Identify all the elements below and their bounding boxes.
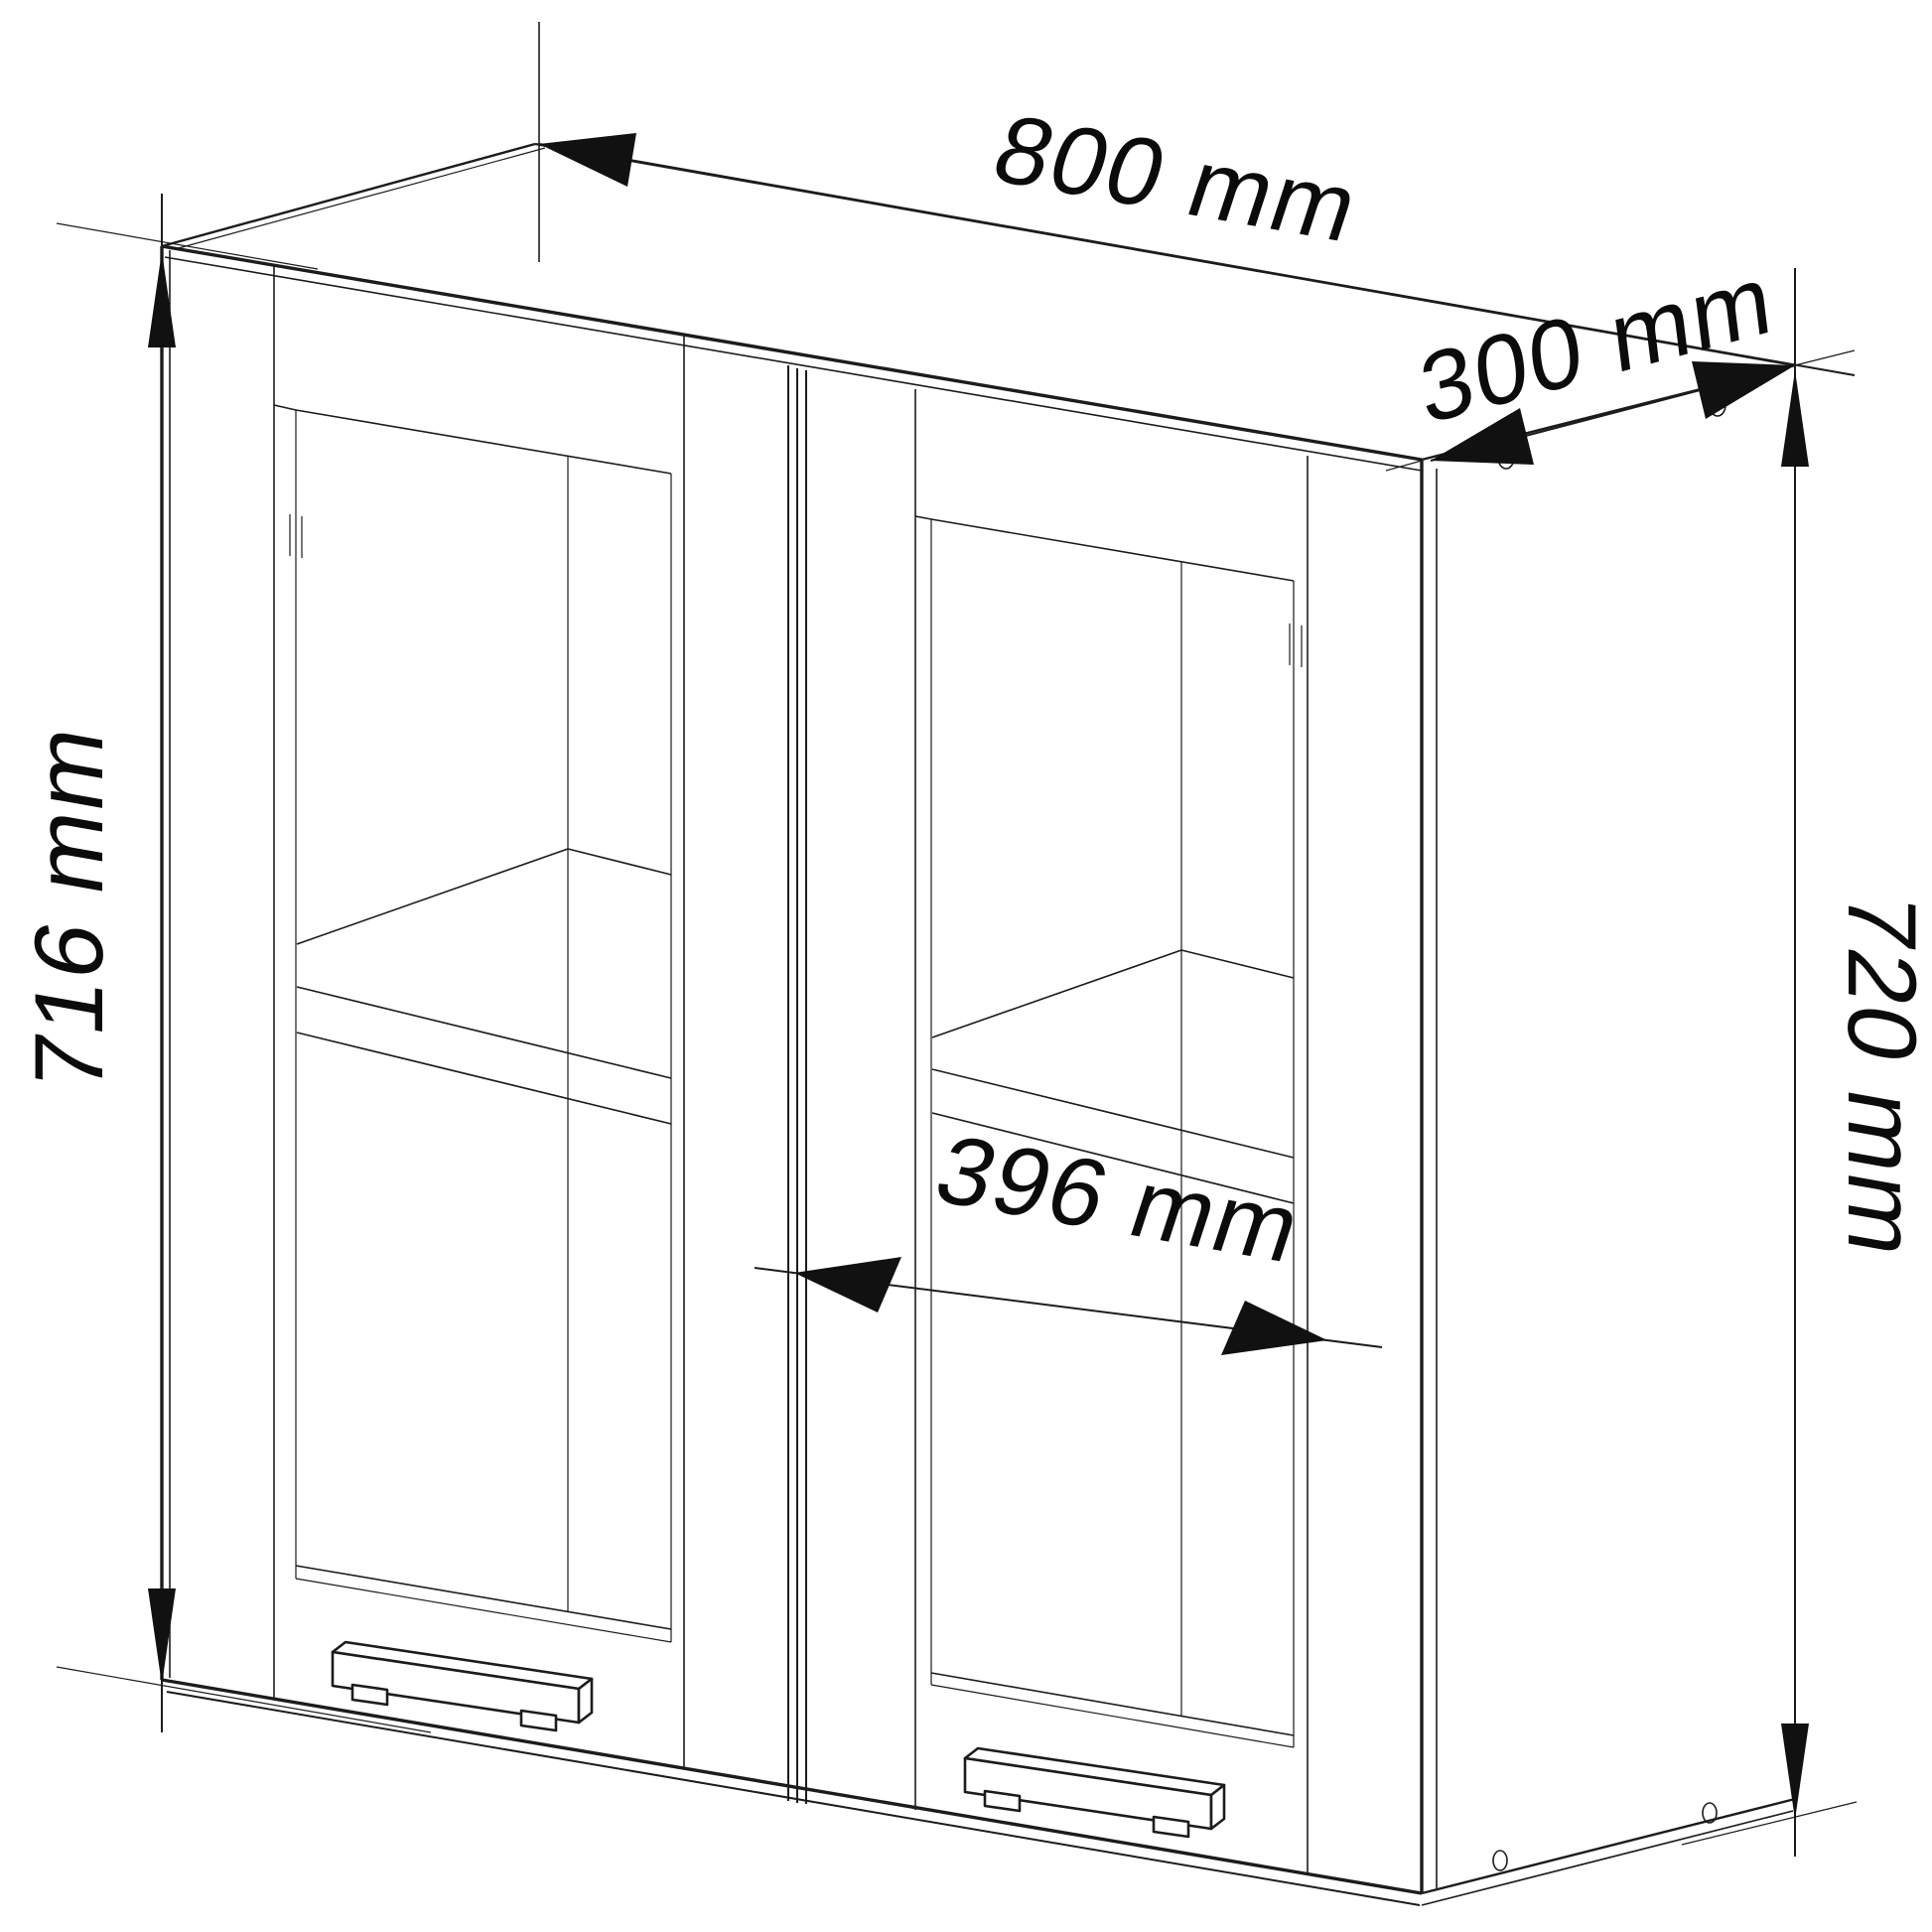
arrowhead-down-icon [148, 1588, 176, 1685]
right-door-rail-top-edge [931, 1673, 1294, 1735]
top-front-edge [162, 246, 1422, 460]
arrowhead-left-icon [539, 133, 636, 187]
top-left-edge [162, 144, 535, 246]
left-compartment-shelf [297, 849, 671, 1124]
left-door-handle [333, 1642, 592, 1730]
dimension-front-height-716: 716 mm [15, 194, 431, 1732]
shelf-front-bottom-edge [297, 1033, 671, 1124]
right-glass-door [806, 370, 1308, 1875]
bottom-front-edge [162, 1680, 1422, 1893]
right-door-rail-top-edge-lower [931, 1685, 1294, 1747]
top-left-edge-inner [175, 148, 545, 249]
dimension-label-width: 800 mm [981, 94, 1373, 262]
left-door-rail-top-edge-lower [296, 1579, 671, 1642]
shelf-front-top-edge [297, 987, 671, 1078]
arrowhead-right-icon [1221, 1301, 1327, 1355]
bottom-front-edge-lower [167, 1692, 1420, 1905]
arrowhead-up-icon [1781, 370, 1809, 467]
dimension-side-height-720: 720 mm [1682, 268, 1932, 1857]
left-door-rail-top-edge [296, 1566, 671, 1629]
right-door-hinge-mark [1290, 623, 1302, 667]
shelf-back-top-edge [1181, 950, 1294, 978]
shelf-left-top-edge [932, 950, 1181, 1037]
cabinet-carcass [162, 144, 1855, 1905]
doors-top-edge [165, 257, 1422, 471]
handle-foot-right [1154, 1817, 1188, 1837]
handle-foot-left [985, 1791, 1020, 1811]
handle-foot-left [352, 1685, 387, 1705]
shelf-back-top-edge [568, 849, 671, 875]
right-door-glass-top-edge [931, 519, 1294, 581]
handle-foot-right [521, 1711, 556, 1730]
side-top-edge-overshoot [1795, 350, 1855, 365]
technical-drawing-page: 800 mm 300 mm 716 mm 720 mm 396 mm [0, 0, 1932, 1932]
arrowhead-up-icon [148, 251, 176, 347]
dimension-depth-300: 300 mm [1414, 242, 1795, 465]
left-door-glass-top-edge [296, 410, 671, 474]
arrowhead-down-icon [1781, 1724, 1809, 1820]
extension-line-top [57, 223, 318, 269]
right-door-rail-corner-tick [915, 516, 931, 519]
left-glass-door [274, 266, 797, 1803]
arrowhead-left-icon [794, 1257, 901, 1312]
shelf-pin-hole-bottom-front [1493, 1851, 1507, 1870]
dimension-label-door-width: 396 mm [923, 1115, 1315, 1283]
side-bottom-edge-lower [1422, 1811, 1793, 1905]
left-door-rail-corner-tick [274, 405, 296, 410]
side-bottom-edge [1422, 1799, 1795, 1893]
cabinet-dimension-diagram: 800 mm 300 mm 716 mm 720 mm 396 mm [0, 0, 1932, 1932]
dimension-label-side-height: 720 mm [1828, 885, 1932, 1267]
dimension-label-front-height: 716 mm [15, 716, 123, 1098]
shelf-left-top-edge [297, 849, 568, 944]
dimension-door-width-396: 396 mm [755, 1115, 1382, 1355]
